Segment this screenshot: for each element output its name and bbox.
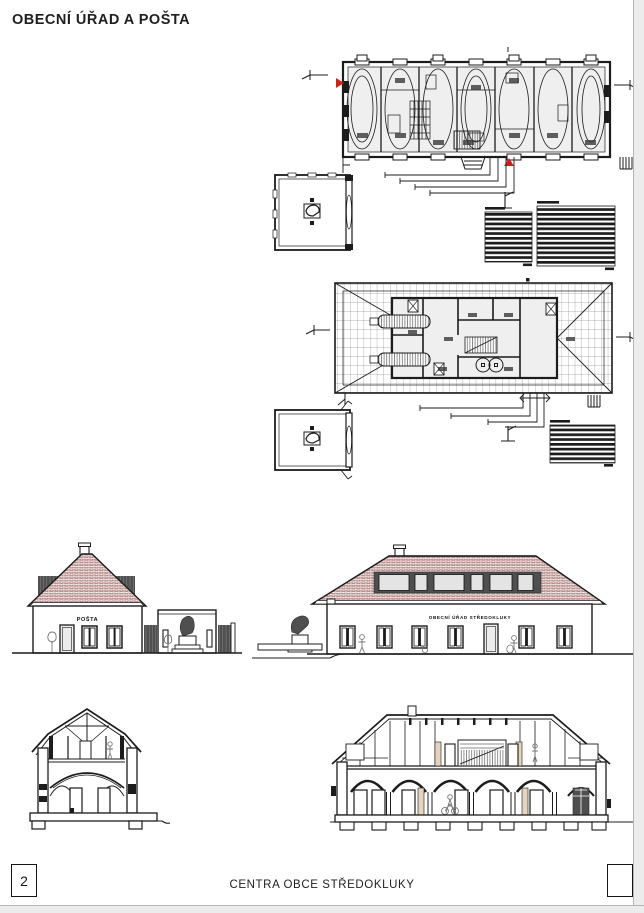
window	[340, 626, 355, 648]
drawing-sheet: OBECNÍ ÚŘAD A POŠTA	[0, 0, 644, 913]
attic-door	[445, 744, 455, 766]
fence-post	[231, 623, 235, 653]
exterior-stair	[588, 395, 600, 407]
attic-window	[346, 744, 364, 760]
wall-accent	[522, 788, 528, 815]
page-edge-bottom	[0, 905, 644, 913]
window	[412, 626, 427, 648]
entrance-door	[60, 625, 74, 653]
window	[82, 626, 97, 648]
callout-lines	[385, 157, 514, 196]
posta-facade-label: POŠTA	[77, 615, 99, 623]
section-marker-icon	[302, 70, 328, 80]
north-arrow-icon	[498, 192, 513, 208]
posta-elevation: POŠTA	[10, 540, 250, 665]
window	[448, 626, 463, 648]
attic-column	[435, 742, 441, 766]
footer-title: CENTRA OBCE STŘEDOKLUKY	[0, 879, 644, 891]
dormer-band	[374, 572, 541, 593]
attic-rooms	[370, 298, 575, 378]
foundation-piers	[340, 822, 606, 830]
dormer-window	[490, 575, 512, 591]
page-edge-right	[633, 0, 644, 913]
dormer-window	[471, 575, 483, 591]
floor-plan-building	[302, 47, 638, 173]
parapet	[327, 599, 335, 604]
ground-line	[157, 821, 170, 823]
statue-wall	[345, 175, 353, 250]
interior-doors	[70, 788, 110, 813]
footer-right-box	[607, 864, 633, 897]
wall-accent	[418, 788, 424, 815]
ground-floor-plan	[258, 45, 644, 280]
attic-window	[580, 744, 598, 760]
ground-line	[252, 654, 642, 658]
foundation	[30, 813, 170, 829]
dormer-window	[379, 575, 409, 591]
wall-slit-window	[207, 630, 212, 647]
urad-facade-label: OBECNÍ ÚŘAD STŘEDOKLUKY	[429, 613, 511, 620]
room-legend-table	[537, 201, 615, 270]
statue-wall-elevation	[158, 610, 216, 653]
urad-elevation: OBECNÍ ÚŘAD STŘEDOKLUKY	[252, 540, 644, 665]
window	[557, 626, 572, 648]
exterior-stair	[620, 157, 632, 169]
fence-panel	[144, 625, 157, 653]
vaulted-ceiling	[50, 773, 124, 796]
attic-stair	[465, 337, 497, 353]
chimney	[408, 706, 416, 716]
roof-plan	[258, 275, 644, 480]
cross-section	[20, 700, 170, 845]
section-marker-icon	[306, 325, 330, 335]
room-legend-table	[550, 420, 615, 467]
statue-wall	[346, 413, 352, 467]
window	[107, 626, 122, 648]
window	[519, 626, 534, 648]
wall-slit-window	[163, 630, 168, 647]
courtyard-plan	[273, 173, 353, 250]
arched-entrance	[573, 788, 589, 815]
dormer-window	[434, 575, 464, 591]
longitudinal-section	[330, 700, 644, 845]
page-title: OBECNÍ ÚŘAD A POŠTA	[12, 12, 190, 28]
dormer-window	[518, 575, 533, 591]
entrance-porch	[461, 157, 485, 169]
north-arrow-icon	[501, 426, 516, 441]
dormer-window	[415, 575, 427, 591]
vaulted-ceiling	[351, 781, 594, 815]
axis-tick	[526, 278, 530, 282]
courtyard-plan	[275, 401, 352, 479]
wall-connector	[343, 157, 350, 173]
low-wall	[258, 644, 322, 650]
room-legend-table	[485, 207, 532, 266]
person-icon	[107, 742, 113, 759]
foundation	[330, 815, 642, 830]
section-marker-icon	[338, 393, 345, 405]
entrance-door	[484, 624, 498, 654]
dimension-arrow	[520, 394, 550, 402]
attic-door	[508, 744, 518, 766]
fence-panel	[218, 625, 231, 653]
window	[377, 626, 392, 648]
ground-floor-doors	[354, 788, 589, 815]
stair-block	[458, 740, 506, 766]
